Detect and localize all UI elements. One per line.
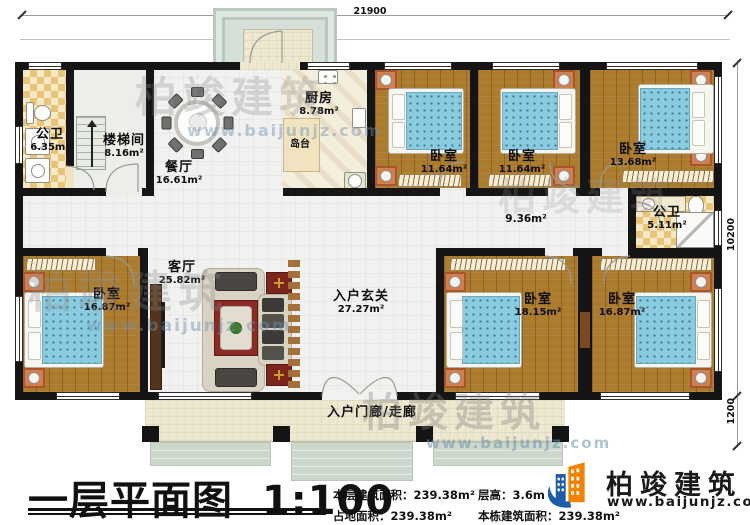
stat-building-area: 本栋建筑面积：239.38m² — [478, 508, 620, 524]
sofa-cushion — [262, 330, 284, 344]
dining-chair — [224, 117, 234, 130]
stairs — [76, 116, 106, 170]
room-label-bedroom-top2: 卧室11.64m² — [499, 150, 545, 175]
brand-logo-icon — [544, 458, 600, 510]
wall — [576, 188, 600, 196]
room-label-bedroom-bl: 卧室16.87m² — [84, 288, 130, 313]
bed-pillow — [697, 300, 710, 328]
nightstand — [690, 272, 712, 292]
wardrobe — [398, 174, 462, 187]
nightstand — [444, 272, 466, 292]
dining-chair — [191, 149, 204, 159]
bed-mattress — [462, 296, 520, 364]
toilet-bowl-icon — [34, 105, 51, 121]
stat-label: 本栋建筑面积： — [478, 509, 559, 523]
room-label-living: 客厅25.82m² — [159, 261, 205, 286]
window — [455, 392, 540, 400]
window — [384, 62, 452, 70]
stat-label: 本层建筑面积： — [333, 488, 414, 502]
sink-icon — [25, 158, 50, 183]
room-label-bedroom-b1: 卧室18.15m² — [515, 293, 561, 318]
stat-label: 层高： — [478, 488, 513, 502]
window — [606, 62, 698, 70]
bed-mattress — [406, 92, 462, 150]
title-underline — [28, 513, 326, 515]
room-area: 16.87m² — [84, 302, 130, 314]
room-label-island: 岛台 — [290, 140, 310, 151]
room-label-bath1: 公卫6.35m² — [30, 128, 69, 153]
bed-pillow — [28, 300, 41, 328]
stat-floor-area: 本层建筑面积：239.38m² — [333, 487, 475, 503]
room-name: 公卫 — [30, 128, 69, 142]
window — [28, 62, 62, 70]
nightstand — [444, 368, 466, 388]
room-label-bedroom-b2: 卧室16.87m² — [599, 293, 645, 318]
toilet-icon — [26, 102, 34, 124]
nightstand — [690, 368, 712, 388]
dimension-right-value: 10200 — [726, 218, 737, 251]
window — [600, 392, 690, 400]
wall — [375, 188, 440, 196]
nightstand — [553, 70, 575, 90]
window — [307, 62, 350, 70]
wardrobe — [622, 170, 714, 183]
brand-url: www.baijunjz.com — [607, 494, 750, 510]
back-porch — [213, 8, 337, 66]
room-name: 岛台 — [290, 140, 310, 151]
window — [15, 296, 23, 362]
floor-plan-page: 21900 10200 1200 — [0, 0, 750, 525]
wall — [436, 248, 545, 256]
stat-value: 3.6m — [513, 488, 545, 502]
room-name: 入户门廊/走廊 — [327, 406, 417, 420]
stairs-direction-line — [91, 125, 93, 167]
wall — [146, 62, 154, 196]
wall — [140, 248, 148, 400]
room-area: 8.78m² — [299, 106, 338, 118]
dimension-line-right — [737, 63, 738, 447]
room-area: 9.36m² — [505, 213, 546, 225]
porch-column — [416, 426, 433, 442]
sofa-cushion — [262, 298, 284, 312]
room-area: 5.11m² — [647, 220, 686, 232]
bed-pillow — [692, 120, 705, 146]
room-label-bath2: 公卫5.11m² — [647, 206, 686, 231]
wardrobe — [450, 258, 566, 271]
window — [714, 76, 722, 164]
wall — [15, 188, 106, 196]
room-name: 卧室 — [610, 143, 656, 157]
dining-chair — [191, 87, 204, 97]
wall — [436, 248, 444, 400]
room-area: 11.64m² — [499, 164, 545, 176]
stairs-arrow-head — [87, 120, 97, 127]
stat-label: 占地面积： — [333, 509, 391, 523]
wall — [573, 248, 602, 256]
room-name: 入户玄关 — [333, 290, 389, 304]
porch-column — [552, 426, 569, 442]
stat-value: 239.38m² — [391, 509, 452, 523]
plan-title-text: 一层平面图 — [28, 478, 233, 524]
bed-mattress — [640, 88, 690, 150]
wardrobe — [488, 174, 552, 187]
window — [714, 210, 722, 246]
wardrobe — [600, 258, 712, 271]
room-area: 25.82m² — [159, 275, 205, 287]
nightstand — [375, 70, 397, 90]
bed-pillow — [392, 122, 405, 148]
room-label-porch: 入户门廊/走廊 — [327, 406, 417, 420]
room-area: 11.64m² — [421, 164, 467, 176]
sofa-cushion — [262, 314, 284, 328]
room-area: 16.61m² — [156, 175, 202, 187]
nightstand — [23, 368, 45, 388]
sofa-cushion — [215, 368, 257, 387]
nightstand — [375, 166, 397, 186]
window — [158, 392, 252, 400]
stat-floor-height: 层高：3.6m — [478, 487, 545, 503]
plant-icon — [230, 322, 242, 334]
bed-mattress — [502, 92, 558, 150]
room-name: 餐厅 — [156, 161, 202, 175]
bed-pillow — [697, 332, 710, 360]
porch-column — [142, 426, 159, 442]
room-area: 27.27m² — [333, 304, 389, 316]
dimension-guideline-top — [20, 39, 730, 40]
room-name: 卧室 — [421, 150, 467, 164]
wardrobe — [26, 258, 96, 271]
room-area: 16.87m² — [599, 307, 645, 319]
room-name: 公卫 — [647, 206, 686, 220]
wall — [15, 248, 106, 256]
back-door-opening — [240, 62, 300, 70]
nightstand — [553, 166, 575, 186]
wall — [630, 248, 722, 256]
title-underline — [28, 508, 326, 511]
window — [714, 288, 722, 372]
porch-column — [273, 426, 290, 442]
stat-value: 239.38m² — [414, 488, 475, 502]
room-label-bedroom-top1: 卧室11.64m² — [421, 150, 467, 175]
stat-land-area: 占地面积：239.38m² — [333, 508, 452, 524]
fridge-icon — [352, 108, 366, 128]
wall — [628, 188, 722, 196]
nightstand — [23, 272, 45, 292]
wall — [367, 62, 375, 196]
bed-pillow — [450, 300, 463, 328]
wall — [470, 62, 478, 196]
bed-pillow — [392, 94, 405, 120]
bed-pillow — [692, 92, 705, 118]
room-name: 厨房 — [299, 92, 338, 106]
room-label-bedroom-top3: 卧室13.68m² — [610, 143, 656, 168]
dining-table-center — [189, 113, 207, 131]
dining-chair — [162, 117, 172, 130]
room-label-stairwell: 楼梯间8.16m² — [103, 134, 145, 159]
sofa-cushion — [215, 272, 257, 291]
room-label-dining: 餐厅16.61m² — [156, 161, 202, 186]
window — [15, 126, 23, 164]
stairwell-door-opening — [106, 188, 142, 196]
bed-pillow — [28, 332, 41, 360]
room-name: 卧室 — [515, 293, 561, 307]
room-name: 卧室 — [499, 150, 545, 164]
room-area: 6.35m² — [30, 142, 69, 154]
kitchen-sink-icon — [344, 172, 366, 189]
wall — [466, 188, 548, 196]
room-name: 卧室 — [84, 288, 130, 302]
dimension-porch-value: 1200 — [726, 398, 737, 424]
screen-divider — [288, 260, 300, 392]
room-label-kitchen: 厨房8.78m² — [299, 92, 338, 117]
room-label-hallway: 9.36m² — [505, 213, 546, 225]
bath1-door-opening — [66, 166, 74, 188]
back-porch-floor — [243, 29, 313, 66]
tv-icon — [161, 302, 165, 368]
room-area: 13.68m² — [610, 157, 656, 169]
dimension-top-value: 21900 — [340, 6, 400, 17]
wall — [580, 62, 590, 196]
room-area: 18.15m² — [515, 307, 561, 319]
wall — [283, 188, 375, 196]
room-area: 8.16m² — [103, 148, 145, 160]
bed-pillow — [559, 122, 572, 148]
pocket-door — [580, 312, 590, 348]
room-label-foyer: 入户玄关27.27m² — [333, 290, 389, 315]
bed-pillow — [559, 94, 572, 120]
bed-pillow — [450, 332, 463, 360]
stove-icon — [318, 70, 338, 84]
window — [492, 62, 560, 70]
room-name: 卧室 — [599, 293, 645, 307]
wall — [142, 188, 154, 196]
sofa-cushion — [262, 346, 284, 360]
room-name: 客厅 — [159, 261, 205, 275]
stat-value: 239.38m² — [559, 509, 620, 523]
entry-door-opening — [322, 392, 397, 400]
entry-steps-left — [150, 442, 271, 466]
room-name: 楼梯间 — [103, 134, 145, 148]
window — [56, 392, 120, 400]
